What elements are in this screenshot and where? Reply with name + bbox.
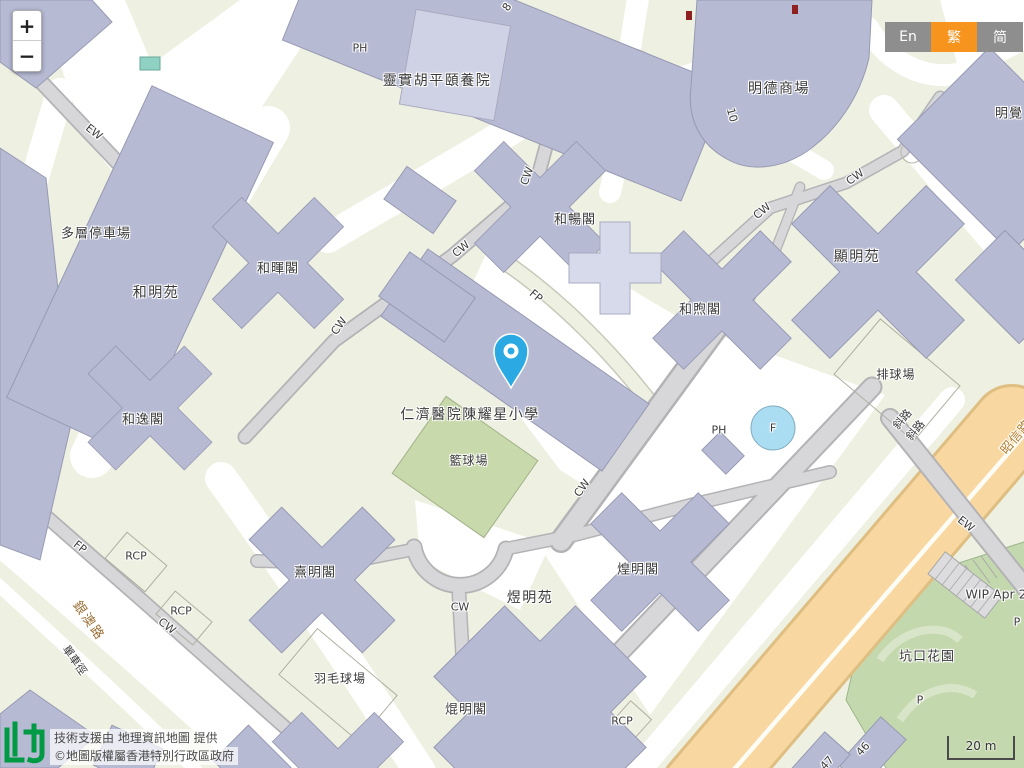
map-symbol-red xyxy=(792,5,798,14)
map-symbol-red xyxy=(686,11,692,20)
fountain xyxy=(751,406,795,450)
zoom-out-button[interactable]: − xyxy=(13,41,41,71)
attribution: 技術支援由 地理資訊地圖 提供 ©地圖版權屬香港特別行政區政府 xyxy=(2,720,238,766)
attribution-provider: 技術支援由 地理資訊地圖 提供 xyxy=(50,729,222,747)
lang-traditional-chinese-button[interactable]: 繁 xyxy=(931,22,977,52)
scale-bar-label: 20 m xyxy=(966,739,997,753)
lang-en-button[interactable]: En xyxy=(885,22,931,52)
lang-simplified-chinese-button[interactable]: 简 xyxy=(977,22,1023,52)
map-canvas[interactable] xyxy=(0,0,1024,768)
language-switcher: En 繁 简 xyxy=(885,22,1023,52)
scale-bar: 20 m xyxy=(947,736,1015,760)
zoom-control: + − xyxy=(12,10,42,72)
geoinfo-map-logo xyxy=(2,720,48,766)
zoom-in-button[interactable]: + xyxy=(13,11,41,41)
map-symbol-teal xyxy=(140,57,160,70)
map-viewport[interactable]: 8PH靈實胡平頤養院明德商場10明覺EWCWCW和暢閣CW多層停車場顯明苑和暉閣… xyxy=(0,0,1024,768)
attribution-copyright: ©地圖版權屬香港特別行政區政府 xyxy=(50,747,238,765)
